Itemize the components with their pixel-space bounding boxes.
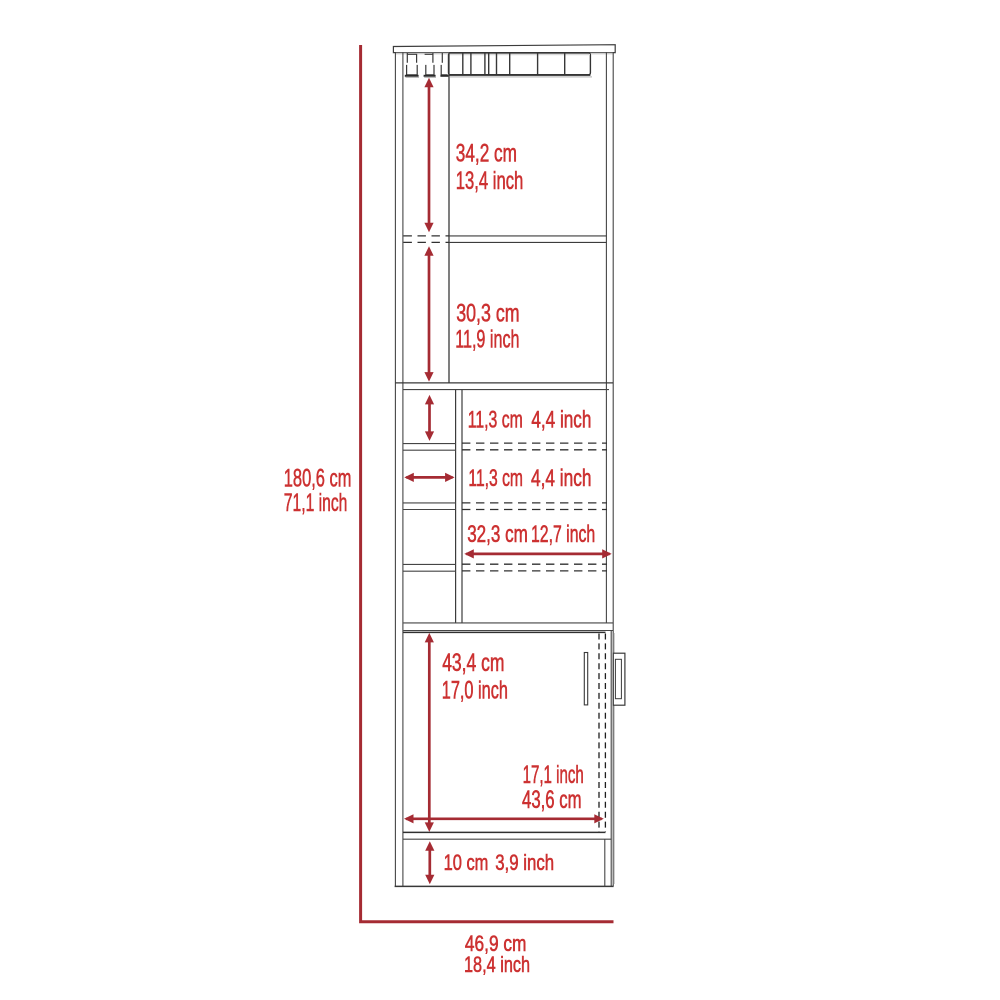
svg-text:43,6 cm: 43,6 cm [522,786,582,814]
svg-text:11,3 cm: 11,3 cm [468,406,523,433]
svg-text:10 cm: 10 cm [444,850,489,875]
svg-text:180,6 cm: 180,6 cm [284,464,352,492]
svg-text:4,4 inch: 4,4 inch [531,406,591,433]
svg-text:11,3 cm: 11,3 cm [468,465,523,492]
svg-text:34,2 cm: 34,2 cm [456,139,517,167]
svg-text:12,7 inch: 12,7 inch [531,521,595,548]
svg-text:32,3 cm: 32,3 cm [467,521,528,548]
svg-text:4,4 inch: 4,4 inch [531,465,592,492]
svg-text:11,9 inch: 11,9 inch [455,326,519,354]
svg-text:13,4 inch: 13,4 inch [456,167,524,195]
svg-text:43,4 cm: 43,4 cm [442,649,504,677]
svg-text:17,0 inch: 17,0 inch [442,677,508,705]
svg-text:71,1 inch: 71,1 inch [284,489,348,517]
svg-text:30,3 cm: 30,3 cm [456,299,519,327]
svg-text:3,9 inch: 3,9 inch [495,850,554,875]
svg-text:17,1 inch: 17,1 inch [523,761,584,789]
svg-text:18,4 inch: 18,4 inch [464,952,530,977]
